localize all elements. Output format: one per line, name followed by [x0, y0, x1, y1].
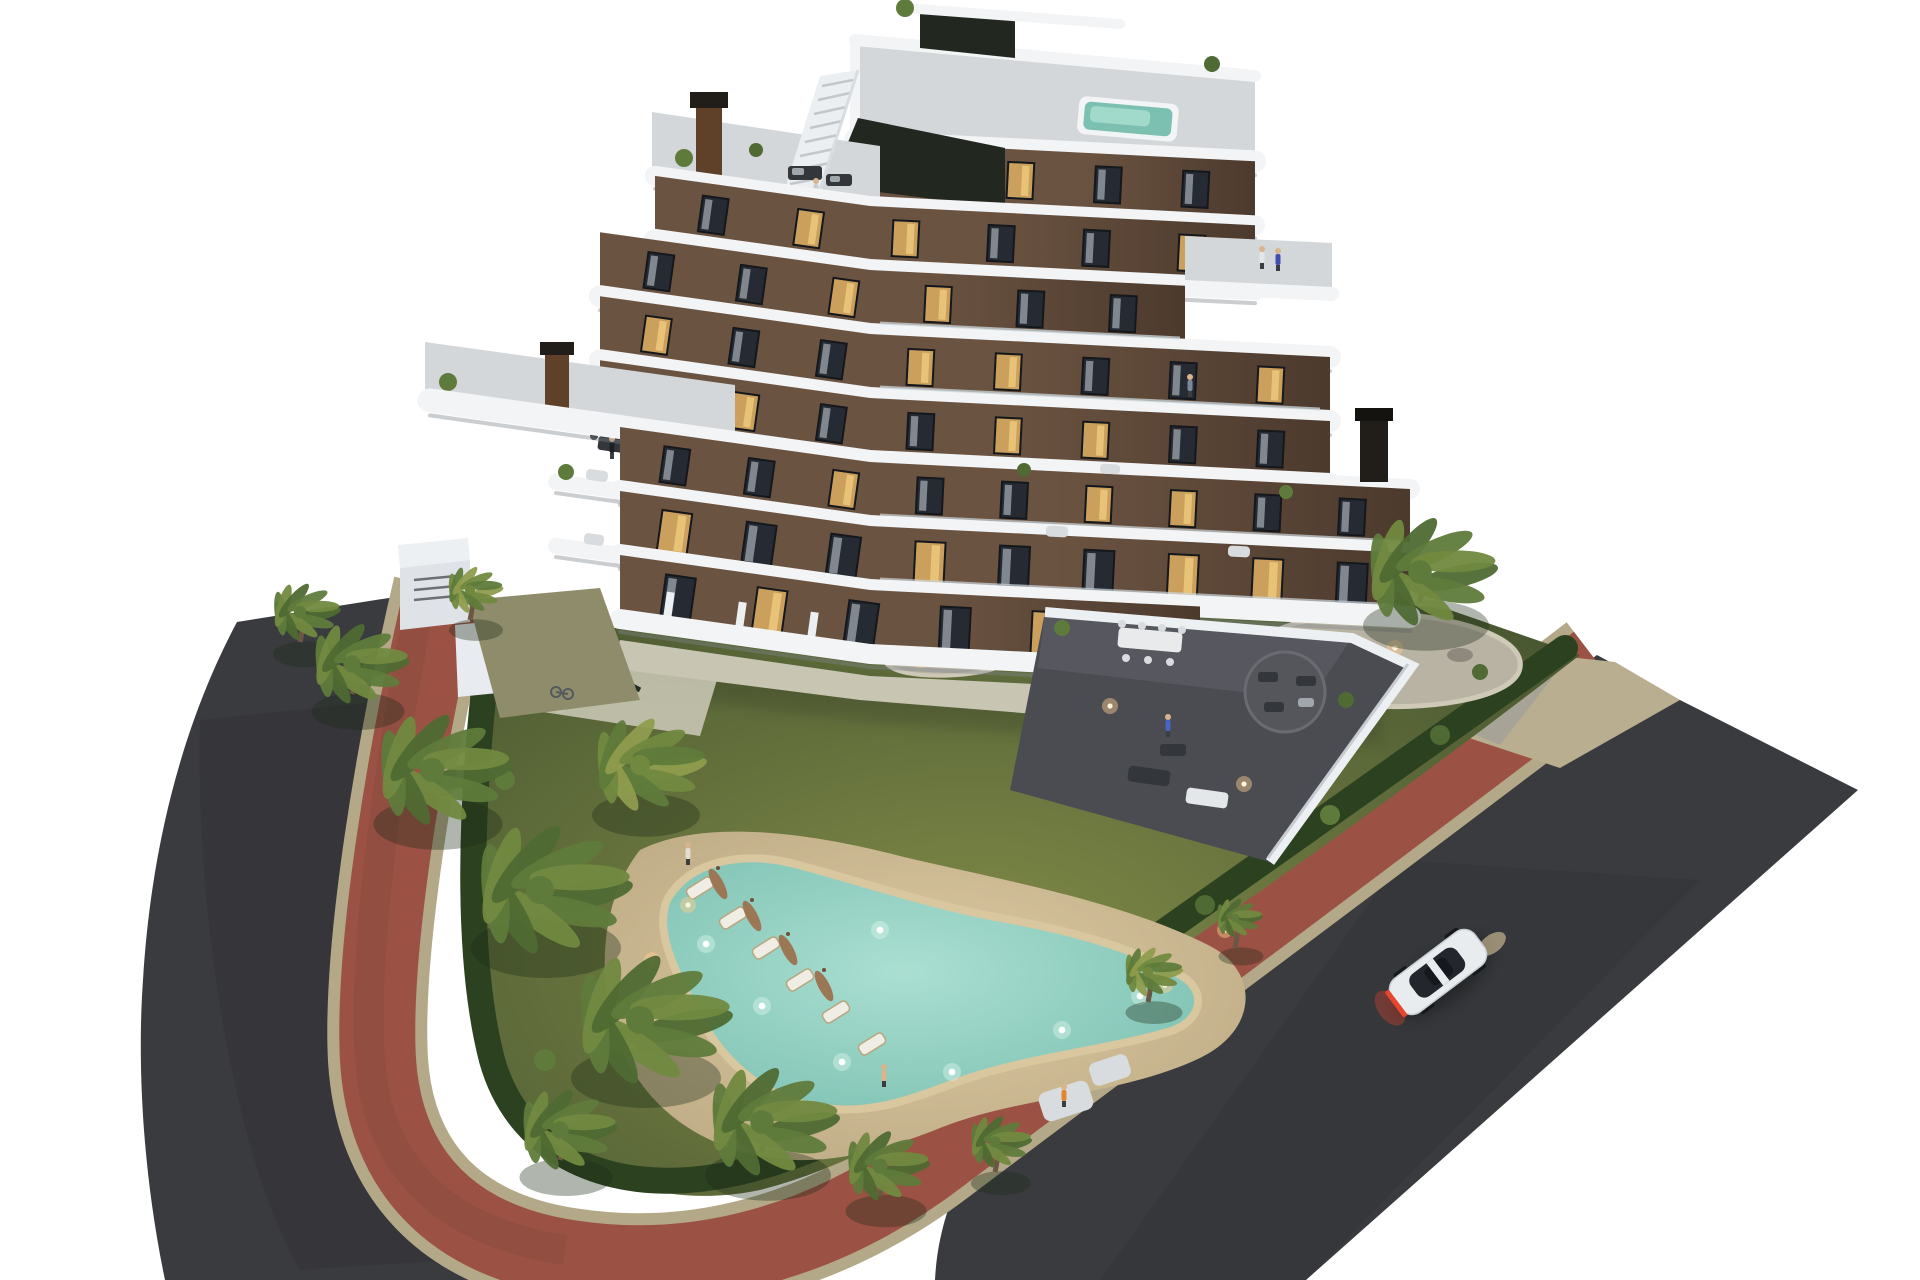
- pool-light: [871, 921, 889, 939]
- window: [1093, 165, 1123, 204]
- window: [1108, 294, 1138, 333]
- tierB-terrace-parapet: [1185, 287, 1332, 294]
- lit-window: [905, 348, 935, 387]
- annex-chimney: [1355, 408, 1393, 482]
- window: [1015, 289, 1045, 328]
- lit-window: [923, 285, 953, 324]
- window: [999, 481, 1029, 520]
- pool-light: [943, 1063, 961, 1081]
- window: [815, 339, 848, 381]
- roof-plant: [1204, 56, 1220, 72]
- terrace-plant: [439, 373, 457, 391]
- window: [727, 327, 760, 369]
- scene-svg: [0, 0, 1920, 1280]
- window: [824, 532, 862, 580]
- window: [1255, 429, 1285, 468]
- lit-window: [640, 314, 673, 356]
- lit-window: [1166, 553, 1200, 599]
- balcony-sofa: [1228, 545, 1251, 557]
- lit-window: [1255, 365, 1285, 404]
- window: [743, 457, 776, 499]
- lit-window: [1250, 557, 1284, 603]
- render-canvas: [0, 0, 1920, 1280]
- pool-light: [753, 997, 771, 1015]
- window: [735, 264, 768, 306]
- lit-window: [656, 509, 694, 557]
- lit-window: [792, 208, 825, 250]
- lit-window: [827, 469, 860, 511]
- lit-window: [891, 219, 921, 258]
- terrace-plant: [749, 143, 763, 157]
- window: [1335, 561, 1369, 607]
- window: [1168, 425, 1198, 464]
- lit-window: [1080, 421, 1110, 460]
- lit-window: [1005, 161, 1035, 200]
- window: [1168, 361, 1198, 400]
- balcony-plant: [1017, 463, 1031, 477]
- balcony-plant: [558, 464, 574, 480]
- round-patio: [1245, 652, 1325, 732]
- lit-window: [1168, 489, 1198, 528]
- window: [938, 605, 972, 655]
- lit-window: [993, 416, 1023, 455]
- window: [815, 403, 848, 445]
- garden-lamp: [1102, 698, 1118, 714]
- pool-light: [697, 935, 715, 953]
- terrace-plant: [675, 149, 693, 167]
- window: [986, 224, 1016, 263]
- window: [658, 445, 691, 487]
- window: [1080, 357, 1110, 396]
- window: [1081, 229, 1111, 268]
- window: [915, 476, 945, 515]
- window: [697, 194, 730, 236]
- pool-light: [833, 1053, 851, 1071]
- lit-window: [993, 352, 1023, 391]
- window: [1337, 497, 1367, 536]
- pool-light: [1053, 1021, 1071, 1039]
- balcony-plant: [1279, 485, 1293, 499]
- window: [1180, 170, 1210, 209]
- lit-window: [1084, 485, 1114, 524]
- garden-lamp: [1236, 776, 1252, 792]
- garden-lamp: [680, 897, 696, 913]
- balcony-sofa: [1100, 463, 1120, 474]
- window: [997, 544, 1031, 590]
- lit-window: [912, 540, 946, 586]
- terrace-plant: [1054, 620, 1070, 636]
- window: [905, 412, 935, 451]
- balcony-sofa: [1046, 525, 1069, 537]
- window: [740, 521, 778, 569]
- terrace-plant: [1338, 692, 1354, 708]
- window: [1081, 549, 1115, 595]
- lit-window: [827, 277, 860, 319]
- window: [1253, 493, 1283, 532]
- window: [642, 251, 675, 293]
